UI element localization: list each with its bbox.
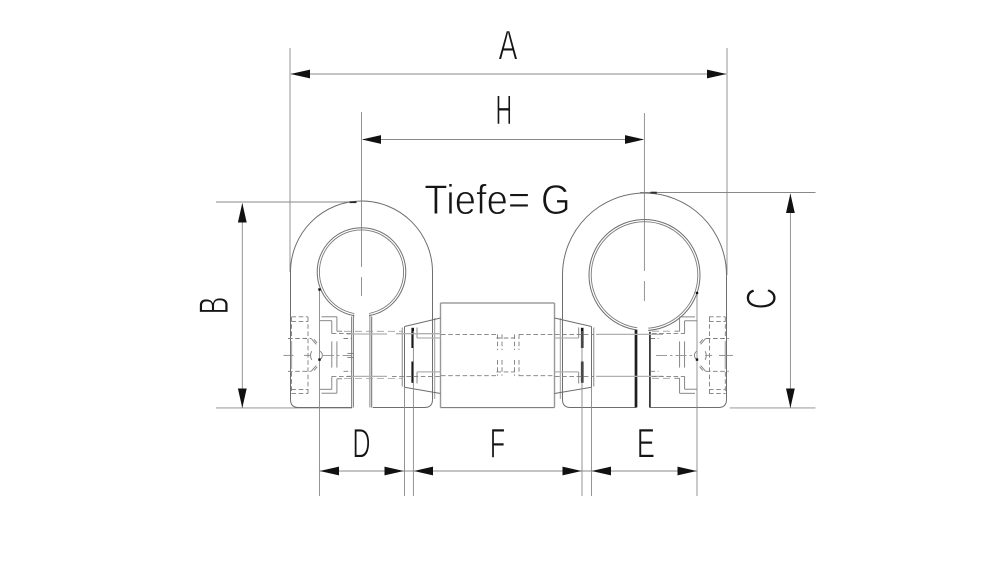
svg-text:A: A: [499, 22, 518, 69]
svg-text:E: E: [637, 419, 655, 466]
svg-text:B: B: [190, 297, 237, 315]
svg-text:F: F: [490, 419, 506, 466]
svg-text:Tiefe= G: Tiefe= G: [424, 176, 570, 223]
svg-text:H: H: [495, 87, 512, 134]
svg-text:D: D: [352, 419, 370, 466]
svg-text:C: C: [737, 288, 784, 310]
